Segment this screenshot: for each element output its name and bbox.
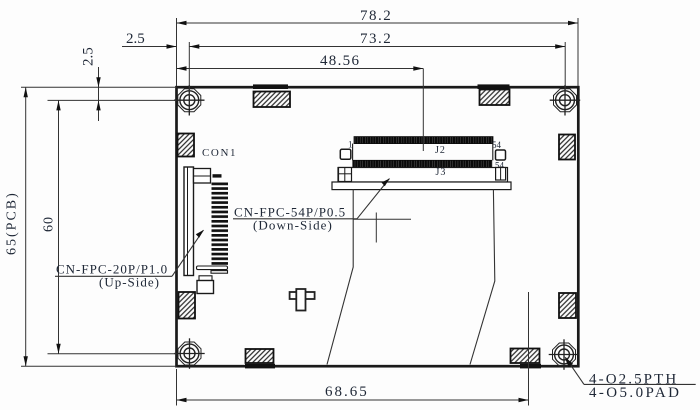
svg-text:2.5: 2.5 — [126, 31, 145, 47]
svg-text:CON1: CON1 — [202, 147, 237, 159]
svg-text:J3: J3 — [436, 167, 447, 178]
svg-text:J2: J2 — [435, 145, 446, 156]
svg-text:65(PCB): 65(PCB) — [5, 191, 20, 255]
svg-text:60: 60 — [42, 216, 57, 232]
svg-text:(Down-Side): (Down-Side) — [253, 218, 333, 233]
svg-text:1: 1 — [348, 140, 353, 150]
svg-text:4-O5.0PAD: 4-O5.0PAD — [589, 385, 681, 401]
svg-text:54: 54 — [492, 140, 502, 150]
svg-text:73.2: 73.2 — [360, 31, 392, 47]
svg-text:48.56: 48.56 — [320, 53, 360, 69]
svg-text:2.5: 2.5 — [81, 47, 97, 66]
svg-text:68.65: 68.65 — [325, 384, 369, 400]
svg-text:78.2: 78.2 — [360, 8, 392, 24]
